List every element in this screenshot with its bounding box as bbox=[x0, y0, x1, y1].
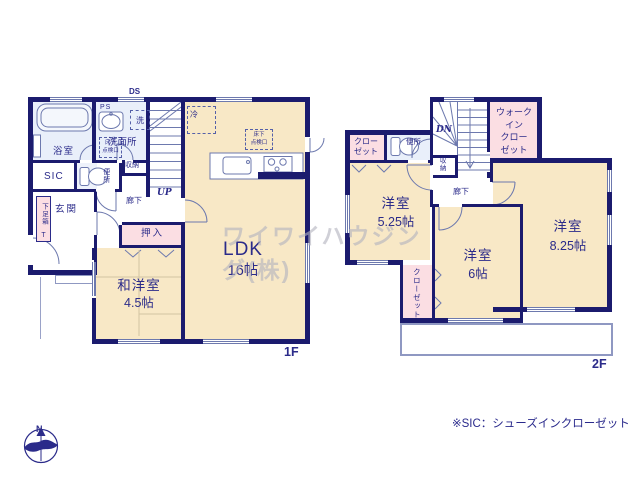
wall bbox=[455, 158, 458, 175]
label-floor1: 1F bbox=[284, 345, 299, 361]
window-opening bbox=[607, 215, 612, 245]
wall bbox=[345, 130, 433, 135]
stairs-1f-icon bbox=[150, 99, 185, 187]
wall bbox=[115, 189, 122, 192]
wall bbox=[119, 245, 185, 248]
label-room2-name: 洋室 bbox=[452, 248, 504, 265]
label-oshiire: 押入 bbox=[141, 228, 164, 240]
bath-counter-icon bbox=[34, 135, 41, 157]
compass-north-label: N bbox=[36, 424, 43, 435]
fridge-box: 冷 bbox=[187, 106, 216, 134]
kitchen-counter-icon bbox=[210, 153, 305, 179]
wall bbox=[433, 175, 458, 178]
wall bbox=[537, 102, 542, 163]
label-dn: DN bbox=[436, 125, 452, 136]
wall bbox=[503, 318, 523, 323]
wall bbox=[181, 222, 185, 339]
label-hallway-1f: 廊下 bbox=[126, 196, 142, 206]
label-toilet-2f: 便所 bbox=[406, 137, 421, 146]
wall bbox=[487, 102, 490, 152]
window-opening bbox=[203, 339, 249, 344]
window-opening bbox=[118, 97, 144, 102]
wall bbox=[33, 189, 77, 192]
wall bbox=[181, 102, 185, 198]
label-storage-2f: 収納 bbox=[437, 157, 445, 172]
wall bbox=[94, 192, 97, 212]
wall bbox=[122, 173, 149, 176]
label-up: UP bbox=[157, 188, 172, 199]
label-room2-size: 6帖 bbox=[452, 267, 504, 283]
window-opening bbox=[92, 262, 96, 296]
wall bbox=[520, 207, 523, 323]
wall bbox=[305, 283, 310, 344]
window-opening bbox=[216, 97, 252, 102]
window-opening bbox=[50, 97, 82, 102]
label-washroom: 洗面所 bbox=[108, 137, 137, 149]
window-opening bbox=[444, 97, 474, 102]
label-room3-size: 8.25帖 bbox=[540, 239, 596, 255]
label-room3-name: 洋室 bbox=[540, 219, 596, 236]
wall bbox=[345, 160, 408, 163]
label-floor2: 2F bbox=[592, 357, 607, 373]
label-storage-1f: 収納 bbox=[125, 162, 139, 171]
label-wic: ウォーク イン クロー ゼット bbox=[491, 106, 537, 156]
wall bbox=[490, 158, 540, 163]
floor-plan-page: 洗 冷 床下 点検口 床下 点検口 DS PS 浴室 洗面所 収納 便所 SIC… bbox=[0, 0, 640, 480]
label-room1-name: 洋室 bbox=[368, 196, 424, 213]
washstand-icon bbox=[99, 112, 123, 131]
window-opening bbox=[448, 318, 503, 323]
window-opening bbox=[607, 170, 612, 192]
shoe-box: 下足箱 bbox=[36, 196, 51, 232]
shoe-box-t: T bbox=[36, 231, 51, 242]
label-washitsu-name: 和洋室 bbox=[107, 278, 171, 295]
wall bbox=[490, 163, 493, 182]
wall bbox=[400, 318, 448, 323]
label-hallway-2f: 廊下 bbox=[453, 187, 469, 197]
label-closet-nw: クロー ゼット bbox=[347, 137, 385, 157]
label-ps: PS bbox=[100, 104, 111, 113]
wall bbox=[487, 172, 490, 178]
label-washitsu-size: 4.5帖 bbox=[107, 296, 171, 312]
wall bbox=[119, 163, 122, 192]
wall bbox=[462, 204, 523, 207]
sic-note: ※SIC：シューズインクローゼット bbox=[452, 415, 630, 431]
wall bbox=[92, 102, 96, 163]
window-opening bbox=[527, 307, 575, 312]
label-ds: DS bbox=[129, 87, 140, 97]
wall bbox=[33, 160, 80, 163]
wall bbox=[428, 160, 433, 163]
label-entrance: 玄関 bbox=[55, 204, 78, 216]
wall bbox=[28, 270, 97, 275]
wall bbox=[305, 97, 310, 137]
wall bbox=[92, 248, 96, 260]
wall bbox=[28, 97, 33, 235]
label-toilet-1f: 便所 bbox=[101, 168, 110, 184]
wall bbox=[95, 160, 117, 163]
label-bathroom: 浴室 bbox=[53, 146, 74, 158]
washer-box: 洗 bbox=[130, 110, 150, 130]
wall bbox=[74, 163, 77, 192]
bathtub-icon bbox=[37, 104, 92, 131]
underfloor-hatch-box-ldk: 床下 点検口 bbox=[245, 129, 273, 150]
wall bbox=[537, 158, 612, 163]
wall bbox=[122, 222, 185, 225]
wall bbox=[92, 298, 96, 339]
watermark: ワイワイハウジング(株) bbox=[222, 217, 437, 285]
window-opening bbox=[118, 339, 160, 344]
label-sic: SIC bbox=[44, 171, 64, 184]
